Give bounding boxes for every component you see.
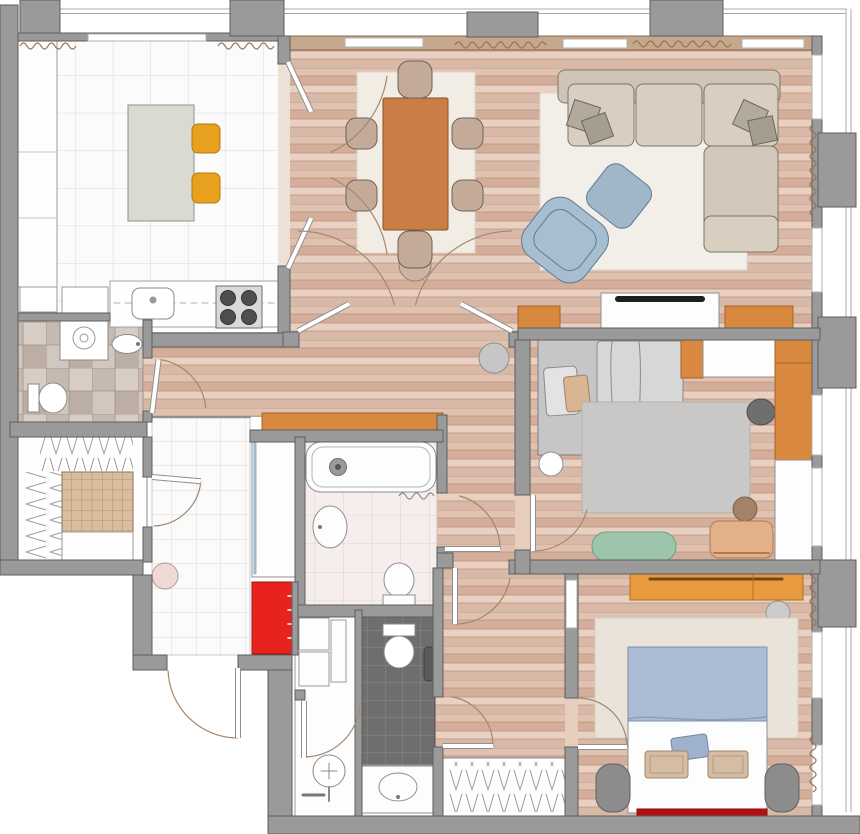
bedroom1-stool-brown: [733, 497, 757, 521]
window-slot: [88, 34, 206, 41]
kitchen-tall-cabinets: [18, 40, 57, 287]
living-cabinet-orange: [725, 306, 793, 330]
pocket-niche: [566, 580, 577, 628]
wc2-sink-tap: [396, 795, 400, 799]
burner: [242, 310, 257, 325]
wall-porch-stub: [133, 655, 167, 670]
bedroom2-door-threshold: [565, 696, 578, 749]
bed2-pillow: [708, 751, 748, 778]
wall-wc1-top: [18, 313, 110, 321]
storage-box: [299, 652, 329, 686]
bedroom1-rug: [582, 402, 750, 513]
desk-stool: [747, 399, 775, 425]
wall-wc1-closet: [10, 422, 147, 437]
wall-pier: [818, 317, 856, 388]
wc2-toilet-tank: [383, 624, 415, 636]
wall-kitchen-dining: [278, 36, 290, 64]
nightstand-arch: [596, 764, 630, 812]
wall-bath-bottom: [295, 605, 437, 617]
wall-corridor-left: [433, 568, 443, 697]
wall-kitchen-dining: [278, 266, 290, 334]
wall-shower-stub: [295, 690, 305, 700]
kitchen-island: [128, 105, 194, 221]
floor-plan-image: [0, 0, 860, 834]
bed1-side-table: [539, 452, 563, 476]
dining-chair: [346, 118, 377, 149]
window-slot: [345, 38, 423, 47]
wall-pier: [650, 0, 723, 36]
wall-porch-stub: [238, 655, 292, 670]
wall-living-bedroom1: [518, 328, 820, 340]
wc1-sink-tap: [136, 342, 140, 346]
kitchen-stool: [192, 173, 220, 203]
window-slot: [812, 468, 822, 546]
bathroom-toilet-bowl: [384, 563, 414, 597]
wall-pier: [20, 0, 60, 36]
window-slot: [812, 228, 822, 292]
dining-chair: [346, 180, 377, 211]
bathtub-faucet-center: [335, 464, 341, 470]
red-cabinet: [252, 582, 295, 654]
dining-chair: [398, 61, 432, 98]
closet-basket: [62, 472, 133, 532]
wall-bedroom1-left: [515, 340, 530, 495]
sofa-pillow: [748, 116, 778, 146]
corridor-floor: [437, 347, 515, 568]
wc1-toilet-tank: [28, 384, 39, 412]
wall-bedroom1-left: [515, 550, 530, 574]
bathtub: [306, 442, 436, 492]
kitchen-stool: [192, 124, 220, 153]
window-slot: [812, 745, 822, 805]
dining-chair: [452, 180, 483, 211]
wall-porch-right: [268, 670, 292, 816]
wall-bedroom1-bottom: [509, 560, 820, 574]
wall-corridor-left: [433, 747, 443, 816]
hallway-bench-cabinet: [262, 413, 443, 430]
entry-hall-floor: [152, 418, 250, 655]
entry-pouf: [152, 563, 178, 589]
sink-tap: [150, 297, 157, 304]
dining-chair: [398, 231, 432, 268]
storage-box: [331, 620, 346, 682]
floor-plan-canvas: [0, 0, 860, 834]
wc1-toilet-bowl: [39, 383, 67, 413]
closet-rail-left: [22, 472, 62, 564]
window-slot: [812, 55, 822, 119]
wall-bath-top: [250, 430, 443, 442]
wall-pier: [467, 12, 538, 37]
bedroom2-dresser-orange: [630, 573, 803, 600]
wall-bath-corridor: [437, 415, 447, 493]
burner: [242, 291, 257, 306]
corridor-closet-rails: [446, 762, 565, 812]
wall-kitchen-hall: [143, 333, 283, 347]
nightstand-arch: [765, 764, 799, 812]
bedroom1-cabinet-orange: [681, 334, 703, 378]
bed2-duvet-blue: [628, 647, 767, 721]
wall-exterior-left: [0, 5, 18, 575]
wall-pier: [818, 133, 856, 207]
wall-bedroom2-left: [565, 747, 578, 816]
kitchen-doorway-threshold: [278, 60, 290, 266]
bathroom-sink-tap: [318, 525, 322, 529]
window-slot: [563, 39, 627, 48]
floor-plan-root: [0, 0, 860, 834]
wall-dining-hall-stub: [283, 332, 299, 347]
closet-rail-top: [40, 437, 133, 471]
storage-box: [299, 618, 329, 650]
entry-wardrobe: [252, 437, 295, 577]
washing-machine: [60, 315, 108, 360]
sofa-cushion: [636, 84, 702, 146]
bedroom1-door-threshold: [515, 493, 530, 552]
dining-chair: [452, 118, 483, 149]
living-cabinet-orange: [518, 306, 560, 331]
closet-drawers: [62, 532, 133, 564]
wall-corridor-stub: [437, 553, 453, 568]
wall-closet-right: [143, 437, 152, 477]
wall-exterior-bottom: [268, 816, 860, 834]
kitchen-cabinet-box: [20, 287, 57, 312]
door-entry: [168, 668, 238, 738]
sofa-chaise-cushion: [704, 216, 778, 252]
kitchen-cabinet-box: [62, 287, 108, 314]
wall-wc1-right: [143, 320, 152, 358]
wall-closet-bottom: [0, 560, 143, 575]
hallway-pouf: [479, 343, 509, 373]
wall-pier: [818, 560, 856, 627]
wall-pier: [230, 0, 284, 36]
bedroom1-bench-green: [592, 532, 676, 561]
wall-closet-right: [143, 527, 152, 562]
bed2-pillow: [645, 751, 688, 778]
wall-redcab-divider: [292, 582, 298, 655]
window-slot: [812, 632, 822, 698]
window-slot: [742, 39, 804, 48]
wc2-toilet-bowl: [384, 636, 414, 668]
burner: [221, 310, 236, 325]
dining-table: [383, 98, 448, 230]
tv: [615, 296, 705, 302]
window-slot: [812, 395, 822, 455]
burner: [221, 291, 236, 306]
